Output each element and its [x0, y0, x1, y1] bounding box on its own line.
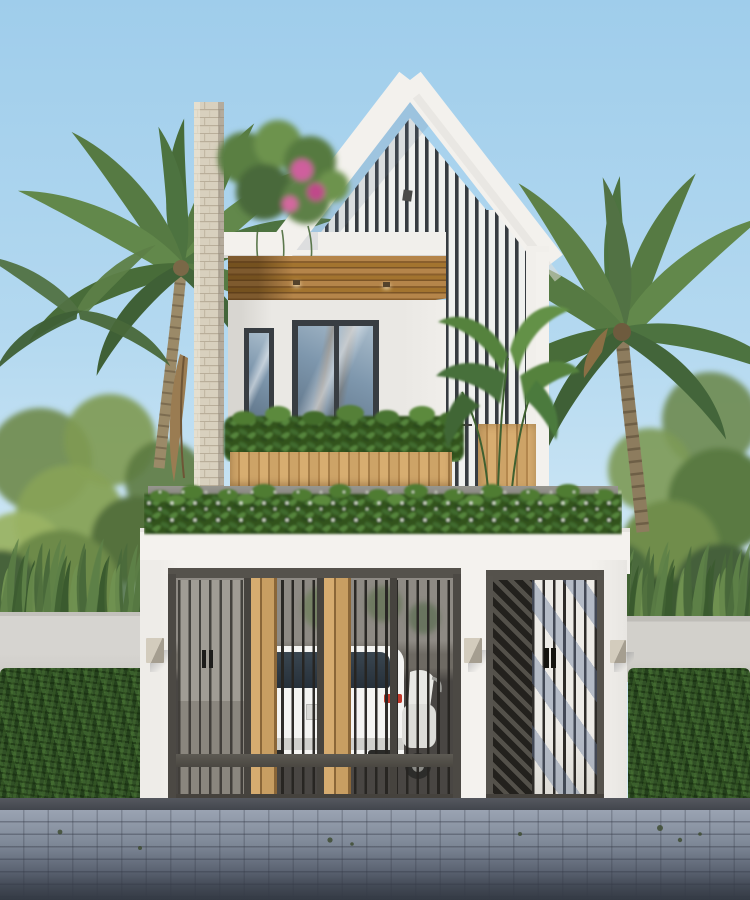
gate-handle-a: [202, 650, 206, 668]
sidewalk-debris: [0, 810, 750, 900]
gate-frame-left: [168, 574, 176, 800]
gate-post-3: [390, 578, 397, 802]
dry-palm-frond: [140, 350, 230, 490]
gate-wood-accent-1: [250, 578, 277, 802]
gate-post-2: [317, 578, 324, 802]
banana-plant: [428, 288, 583, 503]
rooftop-plants: [198, 96, 363, 271]
wall-lamp-middle: [464, 638, 482, 663]
side-gate-diagonal-slats: [492, 580, 532, 798]
flowering-plant-bed: [144, 482, 622, 538]
side-gate-handle-a: [544, 648, 549, 668]
side-gate-sun-shadows: [532, 580, 598, 798]
pedestrian-gate: [486, 570, 604, 806]
side-gate-frame-left: [486, 576, 493, 804]
gate-wood-accent-2: [324, 578, 351, 802]
main-gate: [168, 568, 461, 806]
gable-lamp: [402, 189, 412, 201]
hedge-right: [628, 668, 750, 812]
gate-frame-right: [453, 574, 461, 800]
gate-lintel: [168, 568, 461, 578]
gate-bars: [250, 580, 455, 800]
downlight-left: [293, 280, 300, 285]
hedge-left: [0, 668, 145, 810]
wall-lamp-right: [610, 640, 626, 663]
gate-post-1: [244, 578, 251, 802]
downlight-right: [383, 282, 390, 287]
gate-handle-b: [209, 650, 213, 668]
gate-panel1-bars: [178, 580, 244, 800]
side-gate-lintel: [486, 570, 604, 580]
scene-architectural-render: [0, 0, 750, 900]
side-gate-frame-right: [597, 576, 604, 804]
spiky-plants-left: [0, 530, 152, 622]
gate-mid-rail: [174, 754, 455, 767]
wall-lamp-left: [146, 638, 164, 663]
side-gate-handle-b: [551, 648, 556, 668]
